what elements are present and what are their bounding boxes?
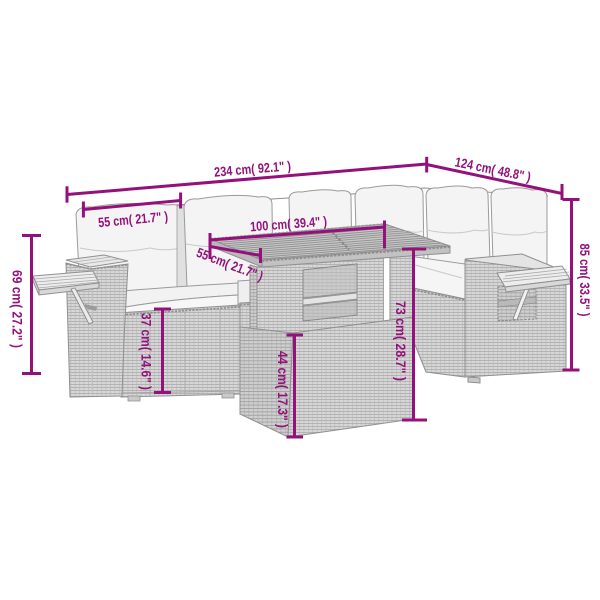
svg-text:37 cm( 14.6" ): 37 cm( 14.6" )	[139, 313, 154, 390]
svg-text:69 cm( 27.2" ): 69 cm( 27.2" )	[10, 270, 25, 348]
svg-text:44 cm( 17.3" ): 44 cm( 17.3" )	[275, 351, 290, 428]
svg-text:85 cm( 33.5" ): 85 cm( 33.5" )	[577, 244, 592, 317]
svg-text:73 cm( 28.7" ): 73 cm( 28.7" )	[393, 301, 408, 381]
